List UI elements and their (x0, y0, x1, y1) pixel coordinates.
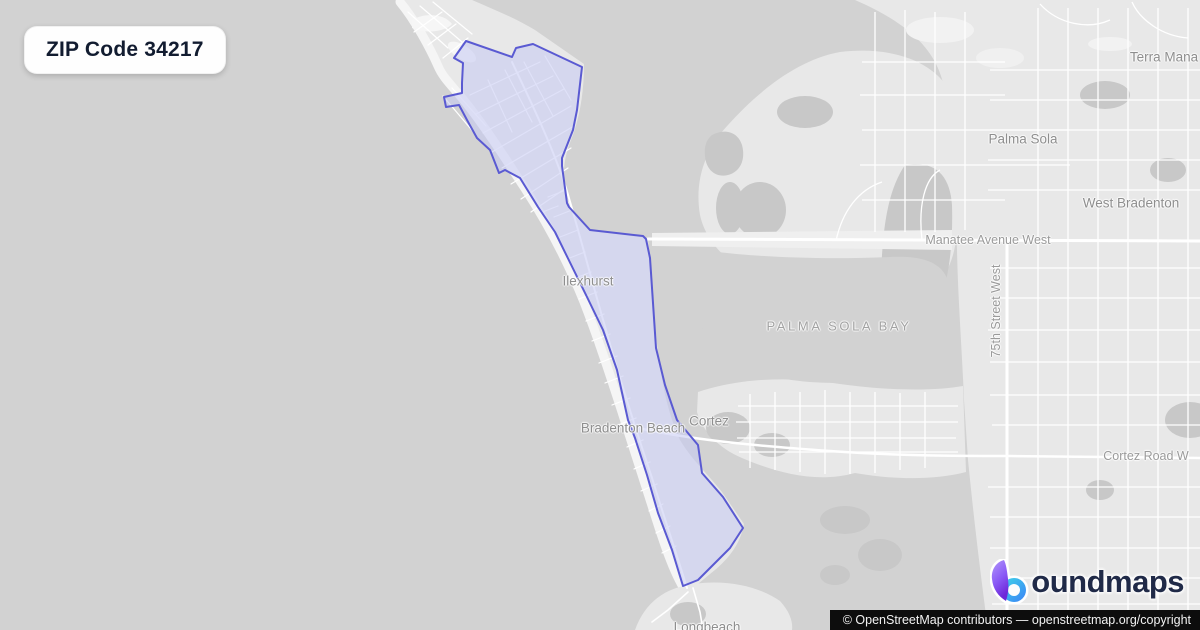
boundmaps-logo: oundmaps (990, 559, 1184, 605)
boundmaps-wordmark: oundmaps (1031, 564, 1184, 600)
map-label-palma-sola: Palma Sola (988, 132, 1057, 147)
attribution-copyright-link[interactable]: openstreetmap.org/copyright (1032, 613, 1191, 627)
map-view: Terra Mana Palma Sola West Bradenton Man… (0, 0, 1200, 630)
map-label-palma-sola-bay: PALMA SOLA BAY (766, 319, 911, 334)
map-label-bradenton-beach: Bradenton Beach (581, 421, 685, 436)
palma-sola-bay-water (697, 250, 950, 383)
zip-code-badge: ZIP Code 34217 (24, 26, 226, 74)
zip-code-badge-label: ZIP Code 34217 (46, 38, 204, 61)
map-label-terra-mana: Terra Mana (1130, 50, 1198, 65)
map-label-ilexhurst: Ilexhurst (562, 274, 613, 289)
map-label-manatee-avenue-west: Manatee Avenue West (925, 233, 1050, 247)
attribution-text: © OpenStreetMap contributors — (843, 613, 1032, 627)
map-label-cortez: Cortez (689, 414, 729, 429)
map-label-75th-street-west: 75th Street West (989, 265, 1003, 358)
map-label-cortez-road-w: Cortez Road W (1103, 449, 1188, 463)
map-canvas[interactable] (0, 0, 1200, 630)
map-label-west-bradenton: West Bradenton (1083, 196, 1180, 211)
map-label-longbeach: Longbeach (674, 620, 741, 630)
boundmaps-icon (990, 559, 1030, 605)
attribution-bar: © OpenStreetMap contributors — openstree… (830, 610, 1200, 630)
